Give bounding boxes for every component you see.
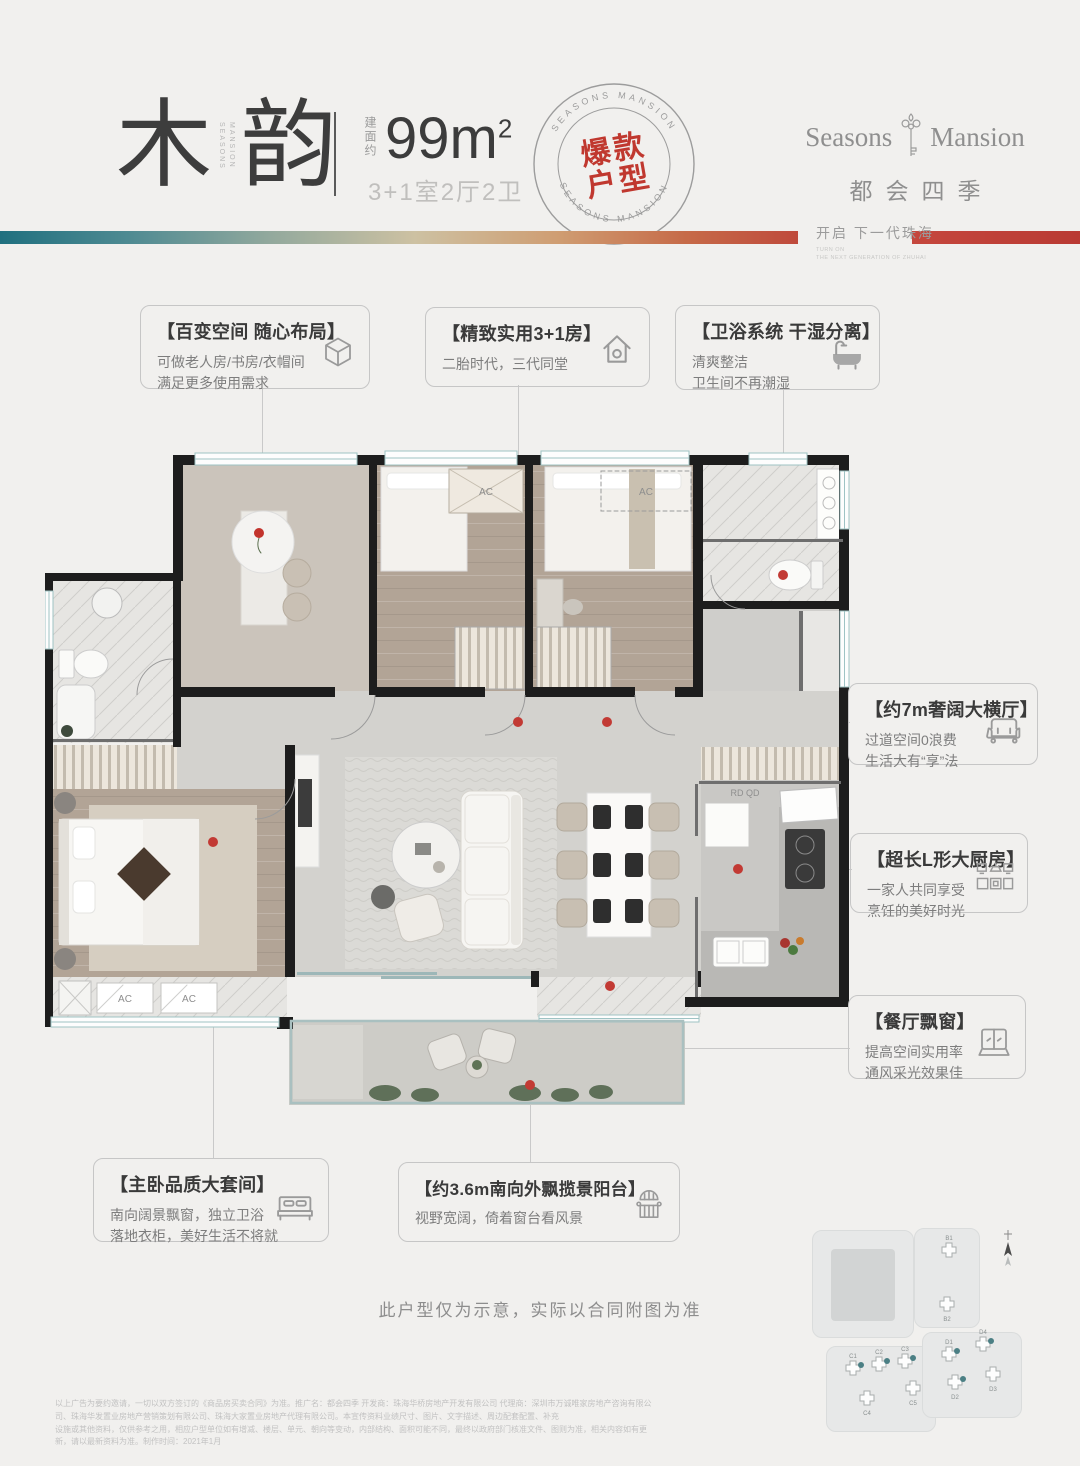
callout-dining-bay: 【餐厅飘窗】 提高空间实用率通风采光效果佳 bbox=[848, 995, 1026, 1079]
sink bbox=[92, 588, 122, 618]
legal-disclaimer: 以上广告为要约邀请，一切以双方签订的《商品房买卖合同》为准。推广名：都会四季 开… bbox=[55, 1398, 655, 1449]
map-building: B2 bbox=[938, 1296, 956, 1323]
title-divider bbox=[334, 112, 336, 196]
red-dot bbox=[733, 864, 743, 874]
house-icon bbox=[598, 330, 636, 373]
ac-label: AC bbox=[118, 994, 132, 1005]
sofa-icon bbox=[984, 714, 1024, 751]
ac-label: AC bbox=[479, 487, 493, 498]
map-building: C1 bbox=[844, 1354, 862, 1381]
area-value: 99m2 bbox=[385, 110, 512, 168]
round-table bbox=[232, 511, 294, 573]
callout-rooms: 【精致实用3+1房】 二胎时代，三代同堂 bbox=[425, 307, 650, 387]
red-dot bbox=[208, 837, 218, 847]
callout-master: 【主卧品质大套间】 南向阔景飘窗，独立卫浴落地衣柜，美好生活不将就 bbox=[93, 1158, 329, 1242]
floor-plan: AC AC AC AC RD QD bbox=[45, 445, 850, 1113]
kitchen-icon bbox=[976, 860, 1014, 899]
ac-label: AC bbox=[182, 994, 196, 1005]
wardrobe-2 bbox=[537, 627, 611, 689]
toilet bbox=[74, 650, 108, 678]
flower-dot bbox=[254, 528, 264, 538]
red-dot bbox=[778, 570, 788, 580]
map-building: C3 bbox=[896, 1347, 914, 1374]
bed-icon bbox=[275, 1193, 315, 1228]
map-building: B1 bbox=[940, 1236, 958, 1263]
hot-unit-stamp: SEASONS MANSION SEASONS MANSION 爆款 户型 bbox=[530, 80, 698, 248]
map-building: D4 bbox=[974, 1330, 992, 1357]
callout-kitchen: 【超长L形大厨房】 一家人共同享受烹饪的美好时光 bbox=[850, 833, 1028, 913]
map-building: C5 bbox=[904, 1380, 922, 1407]
red-dot bbox=[602, 717, 612, 727]
rd-label: RD QD bbox=[731, 788, 761, 798]
area-label: 建面约 bbox=[362, 116, 379, 158]
gradient-bar-left bbox=[0, 231, 798, 244]
fridge bbox=[705, 803, 749, 847]
map-block-a bbox=[812, 1230, 914, 1338]
brand-cn: 都会四季 bbox=[760, 172, 1070, 206]
stove bbox=[785, 829, 825, 889]
cube-icon bbox=[320, 334, 356, 375]
map-block-d bbox=[922, 1332, 1022, 1418]
ac-label: AC bbox=[639, 487, 653, 498]
bay-window-icon bbox=[976, 1026, 1012, 1065]
map-building: D2 bbox=[946, 1374, 964, 1401]
red-dot bbox=[605, 981, 615, 991]
title-char-2: 韵 bbox=[241, 98, 337, 194]
map-building: D3 bbox=[984, 1366, 1002, 1393]
gradient-bar-right bbox=[912, 231, 1080, 244]
callout-hall: 【约7m奢阔大横厅】 过道空间0浪费生活大有“享”法 bbox=[848, 683, 1038, 765]
poster-canvas: 木 SEASONS MANSION 韵 建面约 99m2 3+1室2厅2卫 SE… bbox=[0, 0, 1080, 1466]
tv bbox=[298, 779, 312, 827]
stamp-arc-top: SEASONS MANSION bbox=[549, 90, 678, 133]
brand-en: Seasons Mansion bbox=[760, 112, 1070, 162]
north-compass-icon bbox=[1000, 1230, 1016, 1272]
balcony-icon bbox=[632, 1185, 666, 1228]
wardrobe-1 bbox=[455, 627, 525, 689]
callout-balcony: 【约3.6m南向外飘揽景阳台】 视野宽阔，倚着窗台看风景 bbox=[398, 1162, 680, 1242]
title-side-text: SEASONS MANSION bbox=[218, 122, 235, 170]
layout-spec: 3+1室2厅2卫 bbox=[368, 172, 523, 207]
map-building: C2 bbox=[870, 1350, 888, 1377]
slogan: 开启 下一代珠海 TURN ONTHE NEXT GENERATION OF Z… bbox=[816, 223, 934, 263]
red-dot bbox=[525, 1080, 535, 1090]
red-dot bbox=[513, 717, 523, 727]
callout-bath: 【卫浴系统 干湿分离】 清爽整洁卫生间不再潮湿 bbox=[675, 305, 880, 390]
map-building: D1 bbox=[940, 1340, 958, 1367]
bathtub-icon bbox=[828, 337, 866, 376]
key-icon bbox=[900, 112, 922, 162]
brand-logo: Seasons Mansion 都会四季 bbox=[760, 112, 1070, 206]
map-building: C4 bbox=[858, 1390, 876, 1417]
callout-flex-space: 【百变空间 随心布局】 可做老人房/书房/衣帽间满足更多使用需求 bbox=[140, 305, 370, 389]
toilet-2 bbox=[769, 560, 811, 590]
title-char-1: 木 bbox=[116, 98, 212, 194]
page-title: 木 SEASONS MANSION 韵 bbox=[116, 98, 337, 194]
site-map: B1 B2 C1 C2 C3 C4 C5 bbox=[812, 1222, 1062, 1444]
area-block: 建面约 99m2 bbox=[362, 110, 512, 168]
